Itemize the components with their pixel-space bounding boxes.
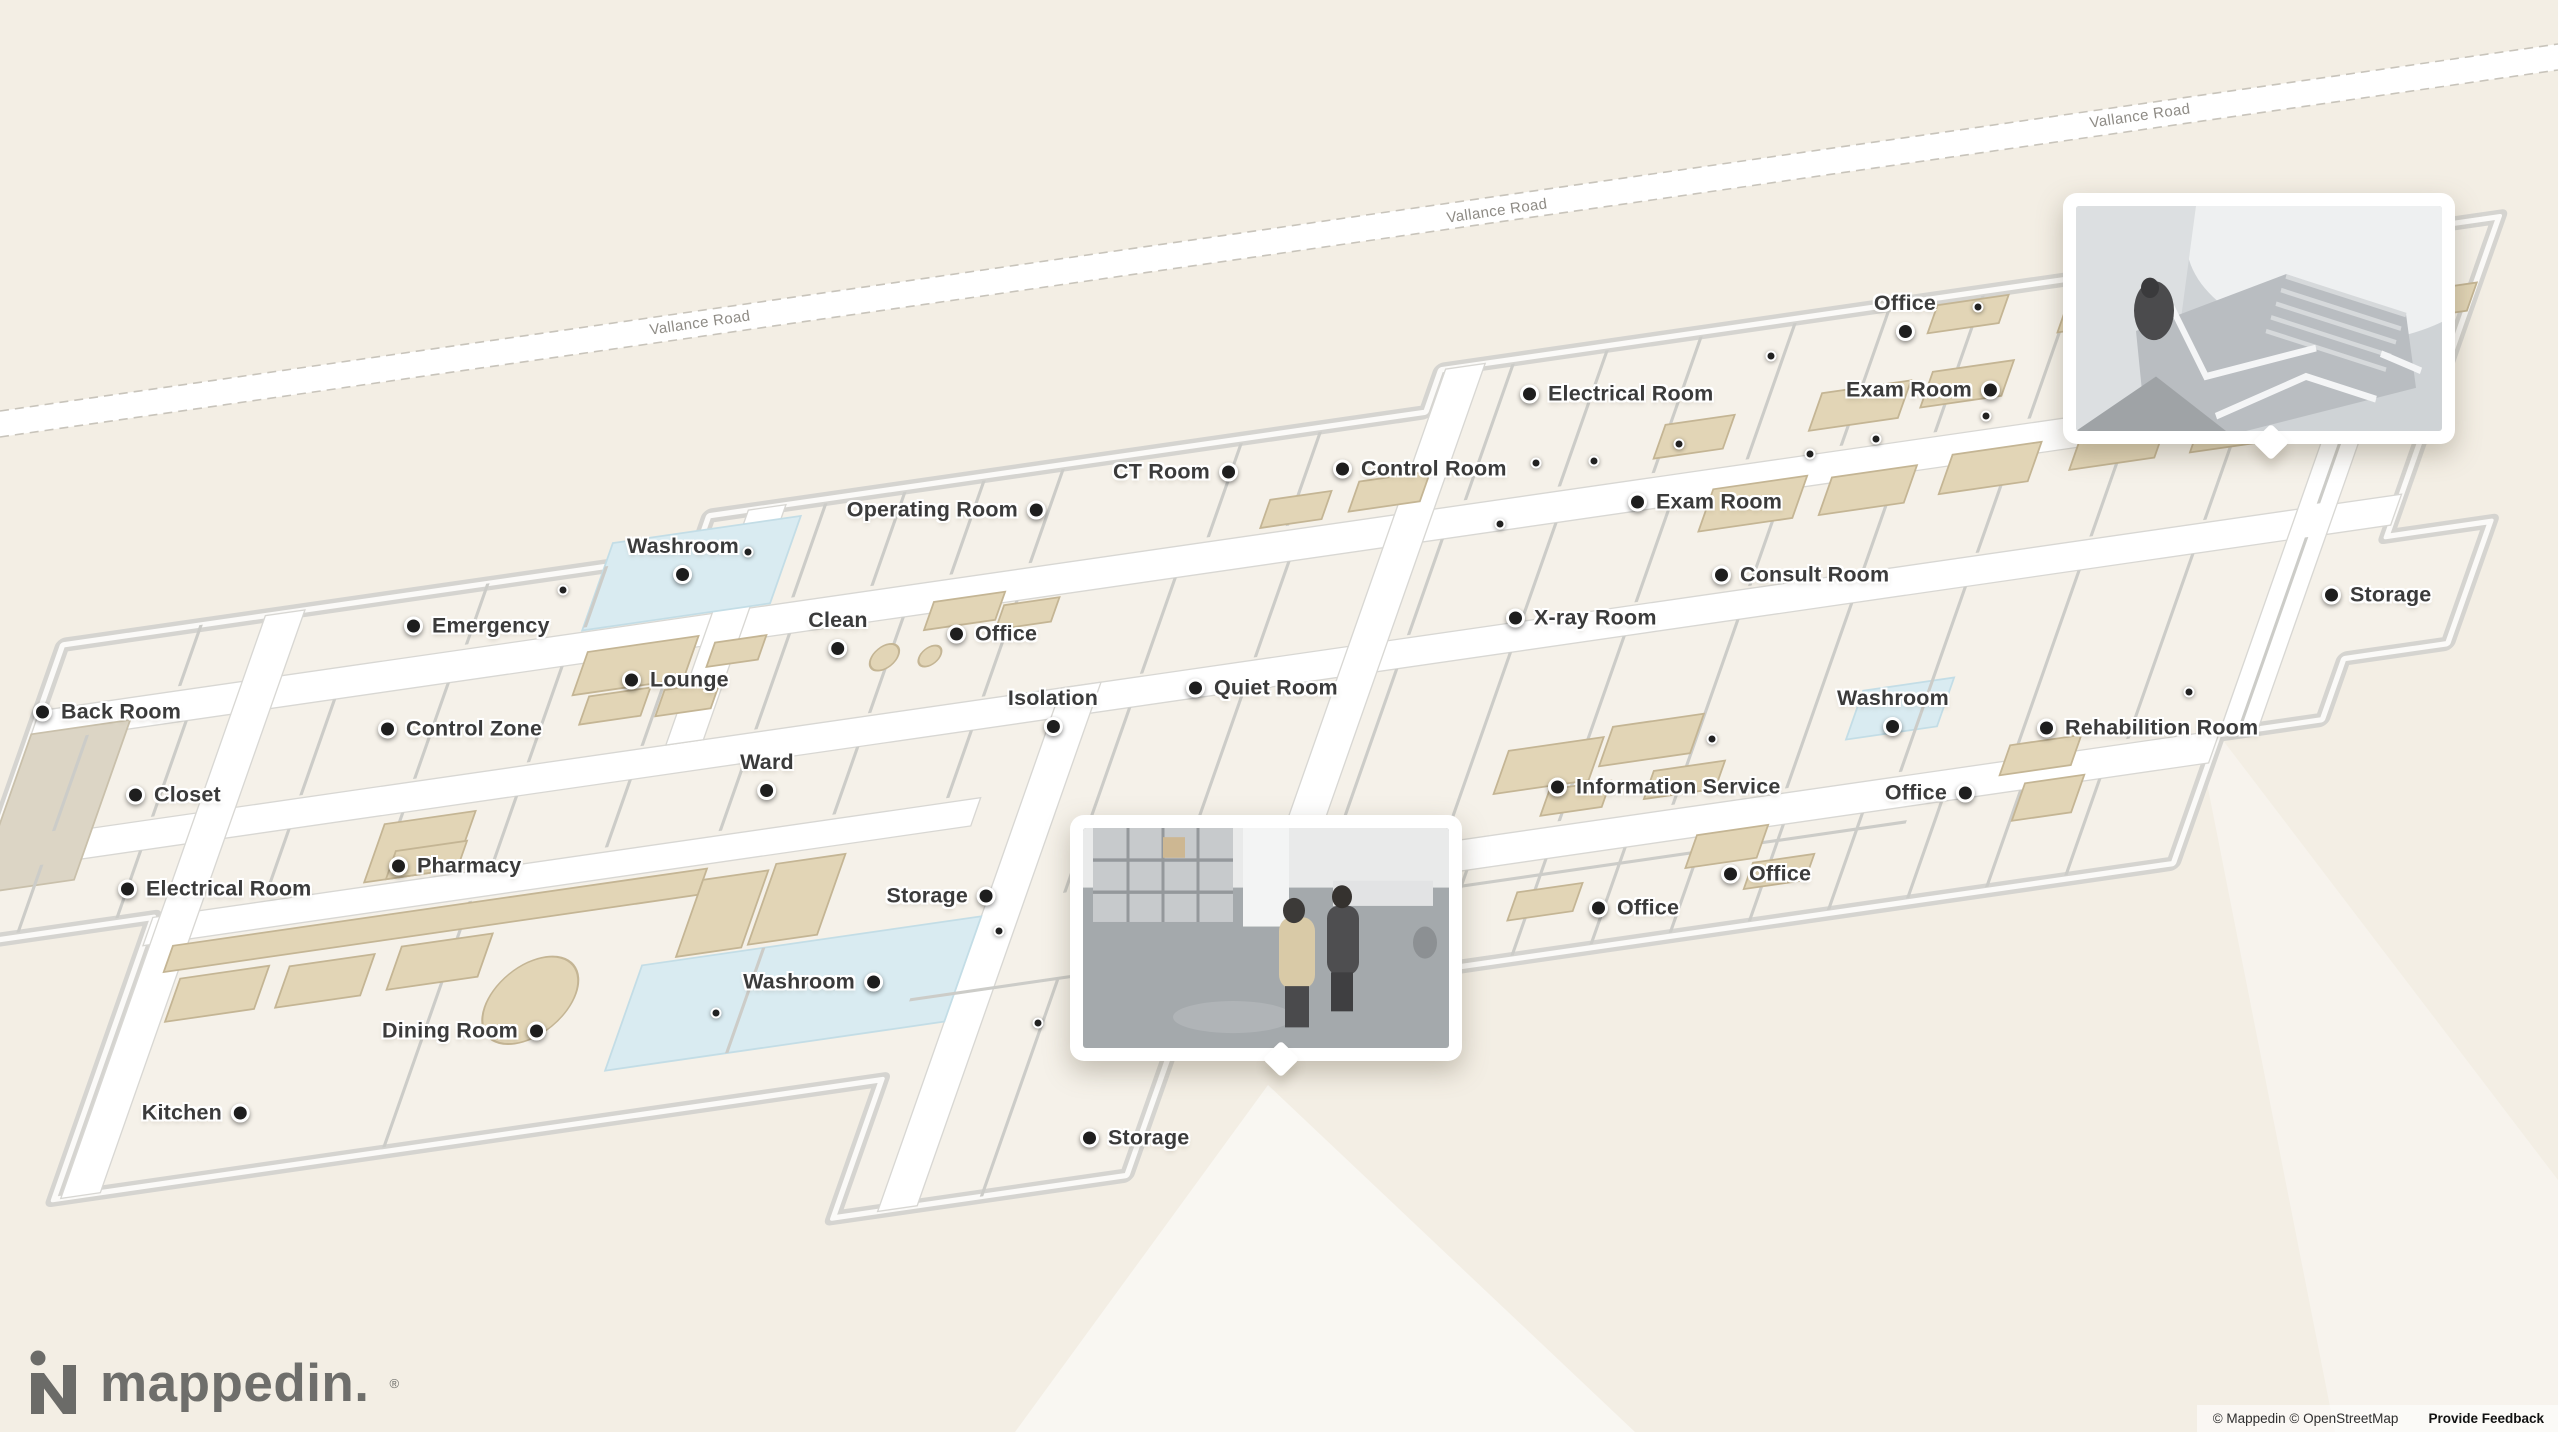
marker-dot[interactable] (1548, 778, 1567, 797)
marker-dot[interactable] (1981, 381, 2000, 400)
room-label-text: X-ray Room (1534, 606, 1657, 631)
small-marker-dot[interactable] (2184, 687, 2195, 698)
marker-dot[interactable] (674, 565, 693, 584)
attribution-bar: © Mappedin © OpenStreetMap Provide Feedb… (2197, 1405, 2558, 1432)
small-marker-dot[interactable] (1766, 351, 1777, 362)
small-marker-dot[interactable] (558, 585, 569, 596)
room-label-text: Back Room (61, 700, 181, 725)
room-label-text: Control Zone (406, 717, 542, 742)
room-label-storage-mid[interactable]: Storage (887, 884, 996, 909)
marker-dot[interactable] (389, 857, 408, 876)
room-label-text: Electrical Room (1548, 382, 1714, 407)
marker-dot[interactable] (864, 973, 883, 992)
room-label-pharmacy[interactable]: Pharmacy (389, 854, 521, 879)
small-marker-dot[interactable] (1674, 439, 1685, 450)
room-label-office-bottom[interactable]: Office (1589, 896, 1679, 921)
room-label-isolation[interactable]: Isolation (1008, 686, 1098, 736)
small-marker-dot[interactable] (711, 1008, 722, 1019)
room-label-information-service[interactable]: Information Service (1548, 775, 1781, 800)
room-label-dining-room[interactable]: Dining Room (382, 1019, 546, 1044)
room-label-washroom-right[interactable]: Washroom (1837, 686, 1949, 736)
marker-dot[interactable] (1027, 501, 1046, 520)
room-label-kitchen[interactable]: Kitchen (142, 1101, 250, 1126)
marker-dot[interactable] (378, 720, 397, 739)
room-label-text: Lounge (650, 668, 729, 693)
room-label-office-top-right[interactable]: Office (1874, 291, 1936, 341)
room-label-rehabilition-room[interactable]: Rehabilition Room (2037, 716, 2258, 741)
room-label-storage-bottom[interactable]: Storage (1080, 1126, 1189, 1151)
mappedin-logo-mark (24, 1350, 80, 1416)
room-label-text: Emergency (432, 614, 550, 639)
room-label-text: Storage (1108, 1126, 1189, 1151)
map-copyright: © Mappedin © OpenStreetMap (2213, 1411, 2399, 1426)
room-label-text: Office (1885, 781, 1947, 806)
room-label-washroom-top[interactable]: Washroom (627, 534, 739, 584)
room-label-control-room[interactable]: Control Room (1333, 457, 1507, 482)
marker-dot[interactable] (1333, 460, 1352, 479)
small-marker-dot[interactable] (1589, 456, 1600, 467)
room-label-office-clean[interactable]: Office (947, 622, 1037, 647)
room-label-storage-right[interactable]: Storage (2322, 583, 2431, 608)
marker-dot[interactable] (622, 671, 641, 690)
camera-popup-stairwell[interactable] (2063, 193, 2455, 444)
marker-dot[interactable] (404, 617, 423, 636)
room-label-electrical-room-right[interactable]: Electrical Room (1520, 382, 1714, 407)
room-label-emergency[interactable]: Emergency (404, 614, 550, 639)
room-label-exam-room-mid[interactable]: Exam Room (1628, 490, 1782, 515)
marker-dot[interactable] (527, 1022, 546, 1041)
room-label-ct-room[interactable]: CT Room (1113, 460, 1238, 485)
room-label-control-zone[interactable]: Control Zone (378, 717, 542, 742)
room-label-washroom-bottom[interactable]: Washroom (743, 970, 883, 995)
marker-dot[interactable] (1589, 899, 1608, 918)
small-marker-dot[interactable] (1707, 734, 1718, 745)
camera-popup-room[interactable] (1070, 815, 1462, 1061)
room-label-clean[interactable]: Clean (808, 608, 868, 658)
room-photo (1083, 828, 1449, 1048)
room-label-text: CT Room (1113, 460, 1210, 485)
marker-dot[interactable] (126, 786, 145, 805)
marker-dot[interactable] (1080, 1129, 1099, 1148)
small-marker-dot[interactable] (994, 926, 1005, 937)
room-label-text: Consult Room (1740, 563, 1889, 588)
marker-dot[interactable] (1219, 463, 1238, 482)
marker-dot[interactable] (2322, 586, 2341, 605)
small-marker-dot[interactable] (1033, 1018, 1044, 1029)
room-label-text: Ward (740, 750, 794, 775)
marker-dot[interactable] (947, 625, 966, 644)
room-label-text: Washroom (627, 534, 739, 559)
small-marker-dot[interactable] (1973, 302, 1984, 313)
room-label-text: Exam Room (1656, 490, 1782, 515)
marker-dot[interactable] (1884, 717, 1903, 736)
room-label-text: Storage (887, 884, 968, 909)
provide-feedback-link[interactable]: Provide Feedback (2428, 1411, 2544, 1426)
marker-dot[interactable] (1712, 566, 1731, 585)
room-label-text: Quiet Room (1214, 676, 1338, 701)
room-label-text: Washroom (743, 970, 855, 995)
stairwell-photo (2076, 206, 2442, 431)
room-label-lounge[interactable]: Lounge (622, 668, 729, 693)
small-marker-dot[interactable] (1871, 434, 1882, 445)
room-label-ward[interactable]: Ward (740, 750, 794, 800)
marker-dot[interactable] (757, 781, 776, 800)
room-label-text: Electrical Room (146, 877, 312, 902)
room-label-text: Isolation (1008, 686, 1098, 711)
mappedin-logo: mappedin. ® (24, 1350, 399, 1416)
room-label-electrical-room-left[interactable]: Electrical Room (118, 877, 312, 902)
room-label-text: Office (1749, 862, 1811, 887)
marker-dot[interactable] (1628, 493, 1647, 512)
marker-dot[interactable] (1895, 322, 1914, 341)
room-label-text: Closet (154, 783, 221, 808)
room-label-office-mid[interactable]: Office (1721, 862, 1811, 887)
marker-dot[interactable] (231, 1104, 250, 1123)
room-label-closet[interactable]: Closet (126, 783, 221, 808)
marker-dot[interactable] (1043, 717, 1062, 736)
room-label-text: Kitchen (142, 1101, 222, 1126)
room-label-text: Pharmacy (417, 854, 521, 879)
marker-dot[interactable] (829, 639, 848, 658)
room-label-text: Washroom (1837, 686, 1949, 711)
room-label-text: Information Service (1576, 775, 1781, 800)
marker-dot[interactable] (1186, 679, 1205, 698)
marker-dot[interactable] (2037, 719, 2056, 738)
marker-dot[interactable] (1506, 609, 1525, 628)
room-label-consult-room[interactable]: Consult Room (1712, 563, 1889, 588)
small-marker-dot[interactable] (1531, 458, 1542, 469)
room-label-exam-room-top[interactable]: Exam Room (1846, 378, 2000, 403)
room-label-text: Office (1617, 896, 1679, 921)
marker-dot[interactable] (118, 880, 137, 899)
marker-dot[interactable] (1956, 784, 1975, 803)
small-marker-dot[interactable] (1981, 411, 1992, 422)
camera-cone (2190, 697, 2558, 1432)
mappedin-logo-text: mappedin. (100, 1353, 370, 1414)
small-marker-dot[interactable] (743, 547, 754, 558)
room-label-text: Dining Room (382, 1019, 518, 1044)
map-canvas[interactable]: Vallance RoadVallance RoadVallance Road … (0, 0, 2558, 1432)
room-label-operating-room[interactable]: Operating Room (847, 498, 1046, 523)
room-label-text: Office (975, 622, 1037, 647)
marker-dot[interactable] (1520, 385, 1539, 404)
room-label-text: Control Room (1361, 457, 1507, 482)
room-label-text: Storage (2350, 583, 2431, 608)
room-label-back-room[interactable]: Back Room (33, 700, 181, 725)
room-label-office-right[interactable]: Office (1885, 781, 1975, 806)
marker-dot[interactable] (33, 703, 52, 722)
room-label-text: Office (1874, 291, 1936, 316)
registered-mark: ® (390, 1376, 400, 1391)
room-label-quiet-room[interactable]: Quiet Room (1186, 676, 1338, 701)
room-label-text: Rehabilition Room (2065, 716, 2258, 741)
small-marker-dot[interactable] (1805, 449, 1816, 460)
small-marker-dot[interactable] (1495, 519, 1506, 530)
room-label-text: Exam Room (1846, 378, 1972, 403)
room-label-text: Operating Room (847, 498, 1018, 523)
marker-dot[interactable] (1721, 865, 1740, 884)
marker-dot[interactable] (977, 887, 996, 906)
room-label-x-ray-room[interactable]: X-ray Room (1506, 606, 1657, 631)
room-label-text: Clean (808, 608, 868, 633)
